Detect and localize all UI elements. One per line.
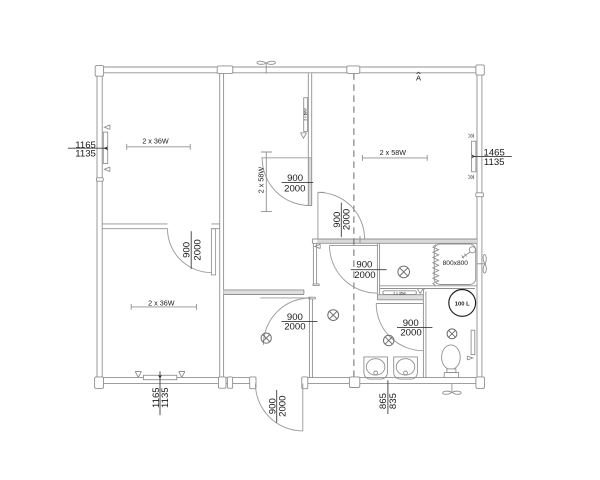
svg-text:2000: 2000	[284, 184, 305, 195]
svg-text:2000: 2000	[284, 322, 305, 333]
svg-text:835: 835	[388, 393, 399, 409]
svg-text:800x800: 800x800	[443, 260, 469, 267]
svg-text:2000: 2000	[192, 239, 203, 260]
svg-text:100 L: 100 L	[455, 301, 470, 307]
svg-text:A: A	[416, 74, 421, 83]
svg-text:2 x 36W: 2 x 36W	[148, 299, 175, 308]
svg-text:2000: 2000	[342, 209, 353, 230]
svg-text:2 x 58W: 2 x 58W	[304, 107, 308, 120]
svg-text:2 x 36W: 2 x 36W	[393, 292, 406, 296]
svg-text:2 x 58W: 2 x 58W	[257, 167, 266, 194]
svg-text:1135: 1135	[484, 157, 505, 168]
svg-text:900: 900	[181, 242, 192, 258]
svg-text:2000: 2000	[277, 396, 288, 417]
svg-text:2 x 36W: 2 x 36W	[142, 137, 169, 146]
svg-text:1135: 1135	[160, 387, 171, 408]
svg-text:2000: 2000	[354, 270, 375, 281]
svg-text:1135: 1135	[75, 149, 96, 160]
svg-text:2000: 2000	[400, 328, 421, 339]
svg-text:2 x 58W: 2 x 58W	[380, 148, 407, 157]
